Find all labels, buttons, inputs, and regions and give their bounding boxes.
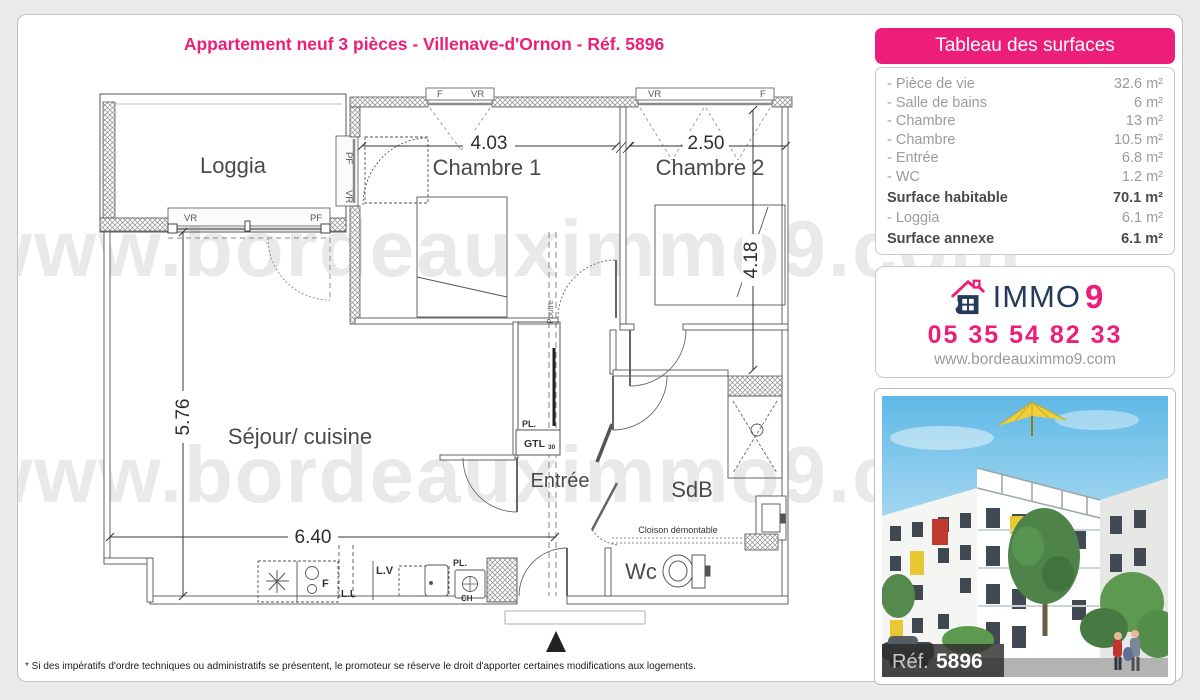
row-value: 6.1 m² [1122, 209, 1163, 228]
table-row-total: Surface annexe6.1 m² [887, 230, 1163, 249]
building-photo-panel: Réf. 5896 [875, 389, 1175, 684]
table-row: - Pièce de vie32.6 m² [887, 75, 1163, 94]
row-label: - Chambre [887, 131, 956, 150]
table-row: - Loggia6.1 m² [887, 209, 1163, 228]
row-value: 1.2 m² [1122, 168, 1163, 187]
watermark-text: www.bordeauximmo9.com [17, 429, 1023, 521]
row-label: Surface habitable [887, 189, 1008, 208]
table-row: - Chambre10.5 m² [887, 131, 1163, 150]
ref-number: 5896 [936, 650, 983, 673]
agency-logo: IMMO9 [947, 276, 1104, 318]
brand-immo: IMMO [993, 279, 1081, 315]
row-label: - Pièce de vie [887, 75, 975, 94]
house-logo-icon [947, 276, 989, 318]
row-value: 13 m² [1126, 112, 1163, 131]
table-row: - Entrée6.8 m² [887, 149, 1163, 168]
row-value: 6 m² [1134, 94, 1163, 113]
page-title: Appartement neuf 3 pièces - Villenave-d'… [24, 34, 824, 55]
surface-table: - Pièce de vie32.6 m² - Salle de bains6 … [875, 67, 1175, 255]
building-photo: Réf. 5896 [882, 396, 1168, 677]
ref-label: Réf. [892, 651, 929, 673]
table-row: - Chambre13 m² [887, 112, 1163, 131]
row-value: 32.6 m² [1114, 75, 1163, 94]
brand-9: 9 [1085, 278, 1103, 316]
table-row-total: Surface habitable70.1 m² [887, 189, 1163, 208]
footnote: * Si des impératifs d'ordre techniques o… [25, 661, 696, 672]
row-label: - WC [887, 168, 920, 187]
table-row: - Salle de bains6 m² [887, 94, 1163, 113]
table-row: - WC1.2 m² [887, 168, 1163, 187]
agency-website: www.bordeauximmo9.com [934, 351, 1116, 369]
agency-phone: 05 35 54 82 33 [928, 321, 1123, 350]
ref-badge: Réf. 5896 [882, 644, 1004, 677]
row-value: 6.1 m² [1121, 230, 1163, 249]
agency-panel: IMMO9 05 35 54 82 33 www.bordeauximmo9.c… [875, 266, 1175, 378]
row-value: 10.5 m² [1114, 131, 1163, 150]
surface-table-header: Tableau des surfaces [875, 28, 1175, 64]
row-value: 6.8 m² [1122, 149, 1163, 168]
row-label: - Entrée [887, 149, 939, 168]
row-label: - Chambre [887, 112, 956, 131]
watermark-text: www.bordeauximmo9.com [17, 203, 1023, 295]
row-label: - Salle de bains [887, 94, 987, 113]
row-label: Surface annexe [887, 230, 994, 249]
row-label: - Loggia [887, 209, 939, 228]
row-value: 70.1 m² [1113, 189, 1163, 208]
